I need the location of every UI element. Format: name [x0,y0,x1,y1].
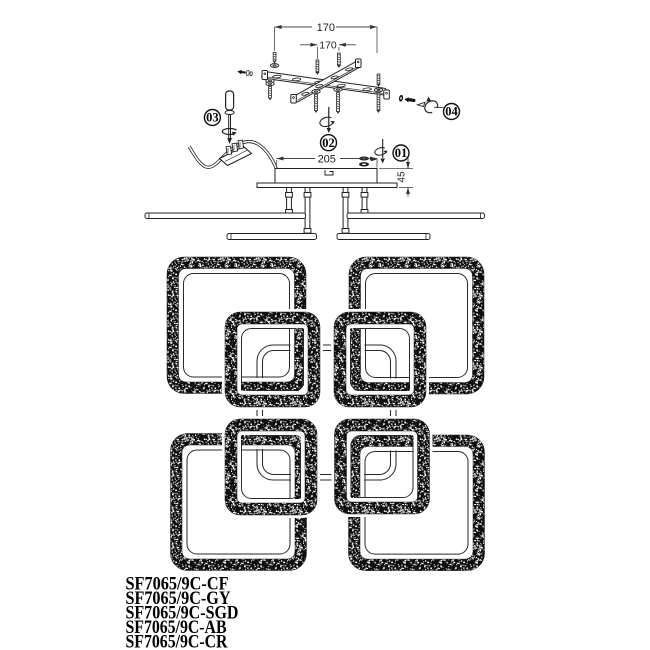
svg-text:170: 170 [317,22,335,34]
svg-text:170: 170 [319,40,337,52]
svg-text:03: 03 [206,111,219,125]
svg-text:SF7065/9C-CR: SF7065/9C-CR [126,632,228,650]
svg-text:02: 02 [322,136,335,150]
svg-text:45: 45 [397,171,408,183]
svg-text:01: 01 [395,146,408,160]
svg-text:04: 04 [445,105,458,119]
svg-text:205: 205 [318,153,336,165]
